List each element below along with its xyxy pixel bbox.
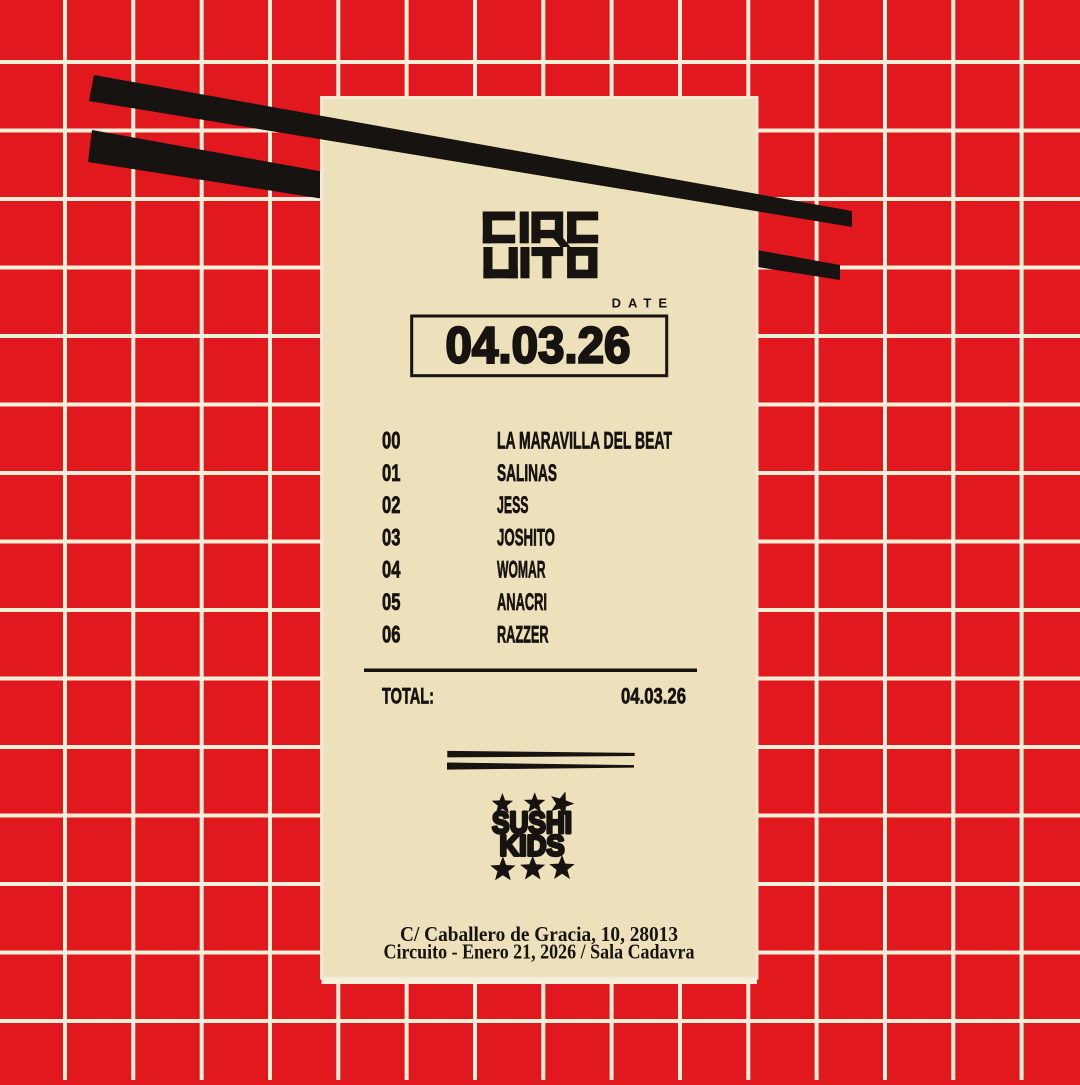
svg-text:01: 01 [382,460,401,487]
svg-text:Circuito - Enero 21, 2026 / Sa: Circuito - Enero 21, 2026 / Sala Cadavra [384,940,695,964]
svg-text:SALINAS: SALINAS [497,460,557,487]
svg-text:04.03.26: 04.03.26 [621,684,686,709]
svg-text:06: 06 [382,621,401,648]
svg-text:04: 04 [382,557,401,584]
svg-text:02: 02 [382,492,401,519]
svg-text:DATE: DATE [612,296,674,311]
svg-text:JESS: JESS [497,492,529,519]
svg-text:05: 05 [382,589,401,616]
svg-text:RAZZER: RAZZER [497,621,549,648]
svg-text:04.03.26: 04.03.26 [446,317,631,374]
svg-text:LA MARAVILLA DEL BEAT: LA MARAVILLA DEL BEAT [497,428,672,455]
svg-text:JOSHITO: JOSHITO [497,524,555,551]
svg-text:WOMAR: WOMAR [497,557,546,584]
svg-text:KIDS: KIDS [500,831,565,863]
svg-text:03: 03 [382,524,401,551]
svg-text:ANACRI: ANACRI [497,589,547,616]
svg-text:TOTAL:: TOTAL: [382,684,434,709]
svg-text:00: 00 [382,428,401,455]
